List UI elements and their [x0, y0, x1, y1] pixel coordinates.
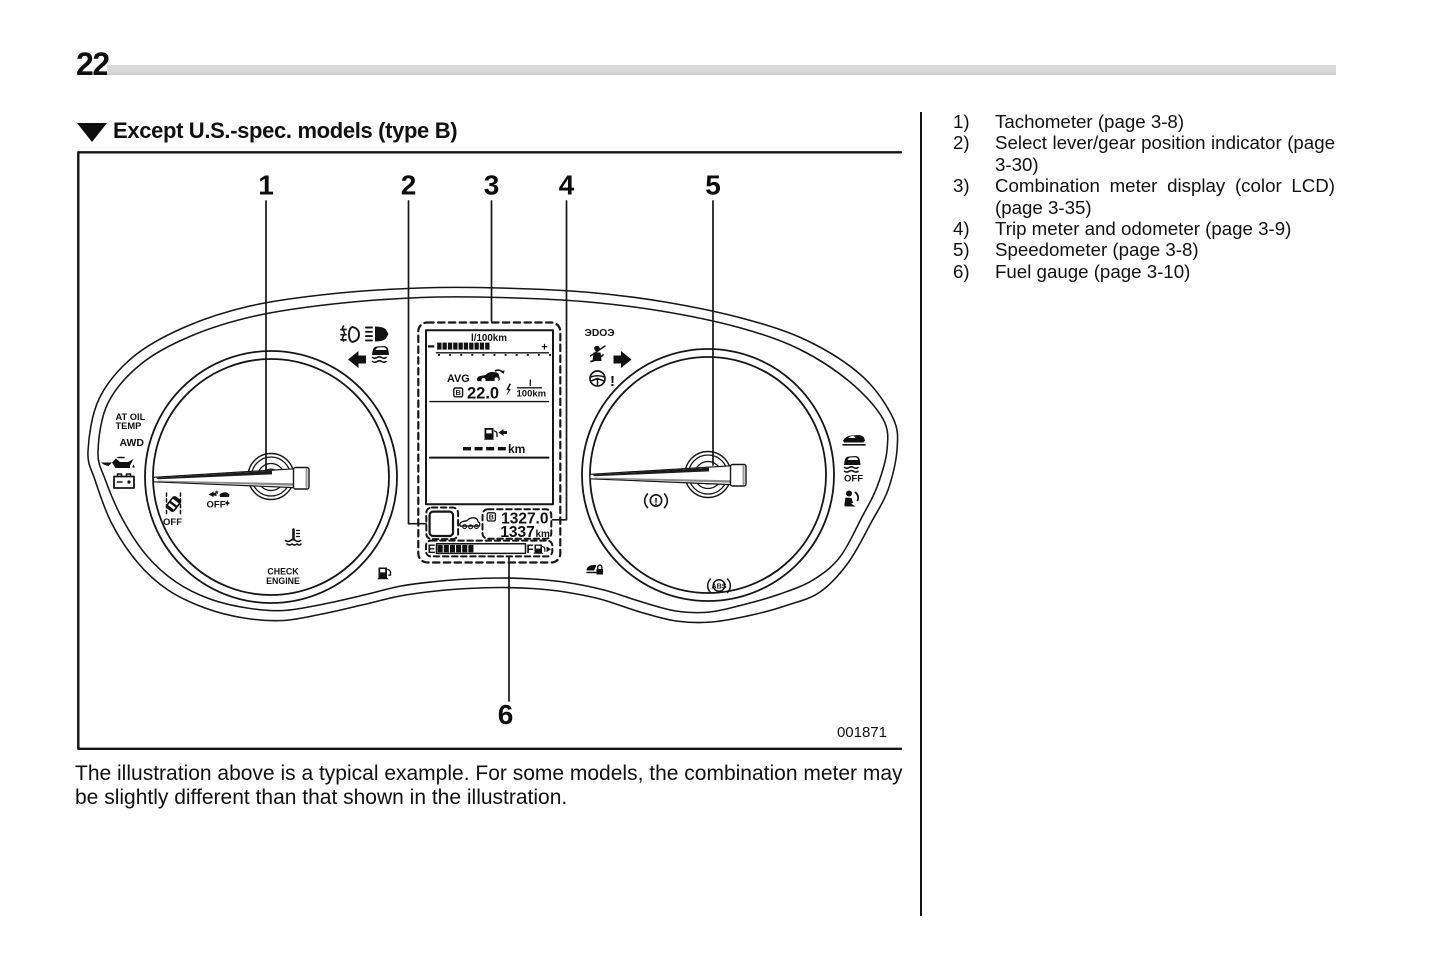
svg-text:3: 3 — [484, 170, 500, 201]
svg-text:*: * — [215, 489, 219, 499]
svg-text:22.0: 22.0 — [467, 384, 499, 402]
svg-text:TEMP: TEMP — [116, 421, 142, 431]
svg-text:AVG: AVG — [447, 373, 470, 385]
svg-text:AWD: AWD — [120, 437, 145, 449]
svg-text:5: 5 — [705, 170, 721, 201]
svg-text:km: km — [536, 529, 551, 540]
svg-text:!: ! — [654, 496, 658, 508]
svg-text:ABS: ABS — [711, 581, 726, 590]
svg-text:CHECK: CHECK — [267, 567, 299, 577]
svg-text:l/100km: l/100km — [471, 333, 507, 344]
svg-text:B: B — [489, 515, 494, 522]
svg-text:OFF: OFF — [207, 500, 226, 511]
svg-text:001871: 001871 — [837, 724, 887, 741]
svg-text:4: 4 — [559, 170, 575, 201]
svg-text:ENGINE: ENGINE — [266, 576, 300, 586]
svg-text:+: + — [541, 342, 547, 354]
svg-text:2: 2 — [401, 170, 417, 201]
svg-text:F: F — [527, 544, 534, 556]
svg-text:B: B — [455, 388, 461, 397]
svg-text:✦: ✦ — [224, 499, 231, 508]
svg-text:OFF: OFF — [163, 517, 182, 528]
svg-text:!: ! — [610, 373, 615, 390]
svg-text:ЭDОЭ: ЭDОЭ — [585, 328, 615, 339]
svg-text:E: E — [428, 544, 436, 556]
svg-text:OFF: OFF — [844, 474, 863, 485]
svg-text:1: 1 — [258, 170, 274, 201]
svg-text:km: km — [508, 442, 525, 456]
svg-text:100km: 100km — [517, 388, 547, 399]
svg-text:1337: 1337 — [500, 524, 534, 541]
svg-text:6: 6 — [498, 699, 514, 730]
